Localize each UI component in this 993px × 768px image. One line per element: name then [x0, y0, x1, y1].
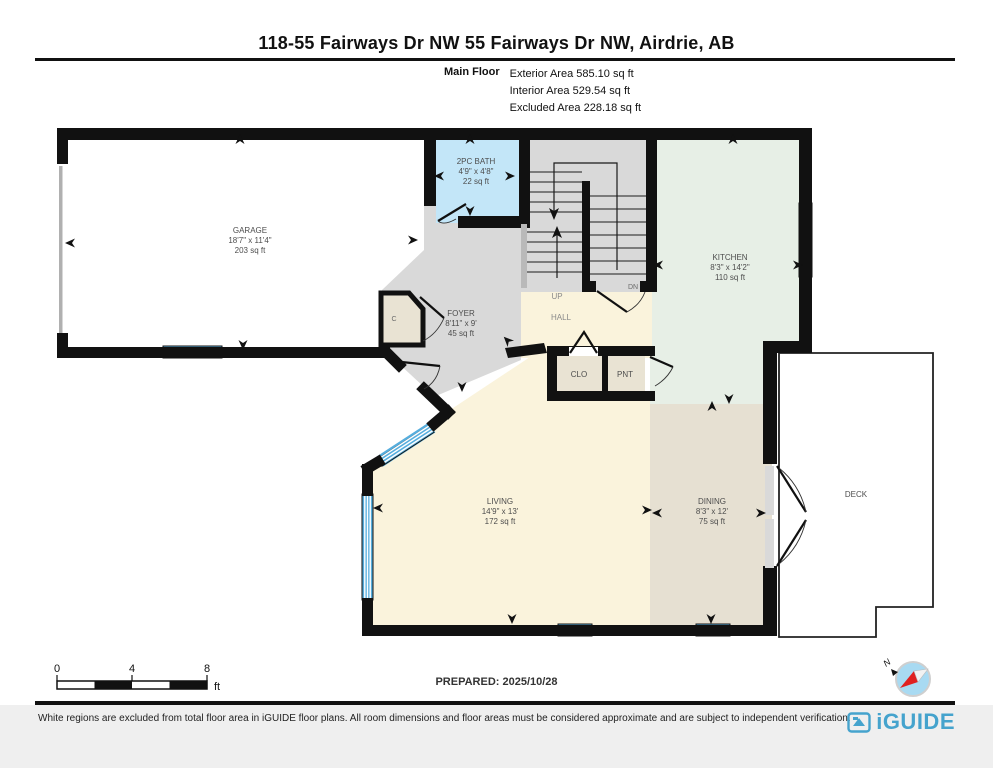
- clo-label: CLO: [571, 370, 587, 379]
- prepared-date: PREPARED: 2025/10/28: [0, 676, 993, 688]
- compass-north-label: N: [881, 656, 892, 668]
- iguide-logo-text: iGUIDE: [876, 709, 955, 735]
- living-dims: 14'9" x 13': [482, 507, 519, 516]
- scale-tick-4: 4: [129, 663, 135, 675]
- living-label: LIVING: [487, 497, 513, 506]
- bath-label: 2PC BATH: [457, 157, 496, 166]
- bath-dims: 4'9" x 4'8": [459, 167, 494, 176]
- garage-door: [59, 166, 63, 333]
- bath-area: 22 sq ft: [463, 177, 490, 186]
- floor-plan: GARAGE 18'7" x 11'4" 203 sq ft 2PC BATH …: [0, 0, 993, 768]
- stairs-down-label: DN: [628, 284, 638, 291]
- window: [362, 494, 373, 600]
- dining-area: 75 sq ft: [699, 517, 726, 526]
- hall-label: HALL: [551, 313, 572, 322]
- garage-dims: 18'7" x 11'4": [228, 236, 271, 245]
- garage-label: GARAGE: [233, 226, 267, 235]
- pnt-label: PNT: [617, 370, 633, 379]
- foyer-dims: 8'11" x 9': [445, 319, 477, 328]
- footer-divider: [35, 701, 955, 705]
- foyer-area: 45 sq ft: [448, 329, 475, 338]
- scale-tick-0: 0: [54, 663, 60, 675]
- disclaimer-text: White regions are excluded from total fl…: [38, 713, 851, 724]
- scale-tick-8: 8: [204, 663, 210, 675]
- closet-c: [381, 293, 423, 345]
- garage-area: 203 sq ft: [235, 246, 266, 255]
- footer: White regions are excluded from total fl…: [0, 705, 993, 768]
- kitchen-area: 110 sq ft: [715, 273, 746, 282]
- iguide-brand: iGUIDE: [847, 709, 955, 735]
- kitchen-dims: 8'3" x 14'2": [710, 263, 750, 272]
- closet-c-label: C: [391, 316, 396, 323]
- living-area: 172 sq ft: [485, 517, 516, 526]
- stairs-up-label: UP: [551, 292, 562, 301]
- floorplan-page: 118-55 Fairways Dr NW 55 Fairways Dr NW,…: [0, 0, 993, 768]
- deck-label: DECK: [845, 490, 868, 499]
- dining-dims: 8'3" x 12': [696, 507, 729, 516]
- foyer-label: FOYER: [447, 309, 475, 318]
- iguide-logo-icon: [847, 711, 871, 733]
- dining-label: DINING: [698, 497, 726, 506]
- kitchen-label: KITCHEN: [712, 253, 747, 262]
